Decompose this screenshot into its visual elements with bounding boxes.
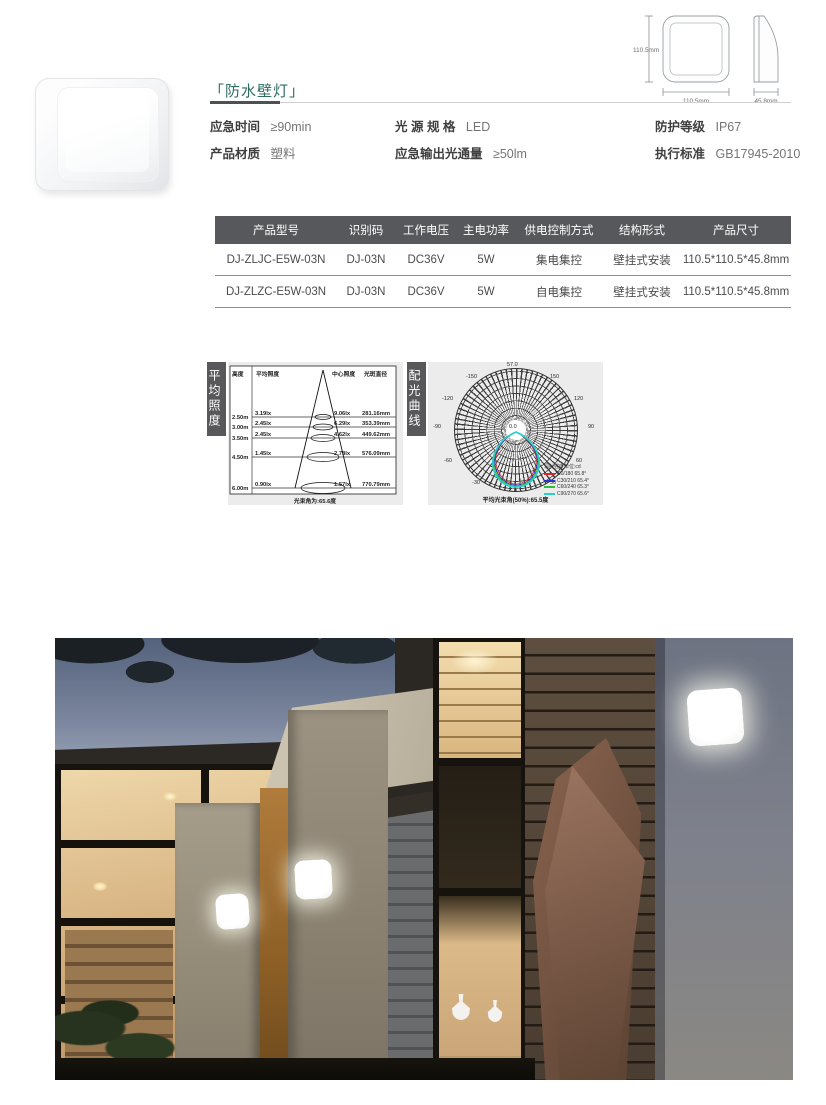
row-avg: 1.45lx	[255, 451, 272, 457]
legend-swatch	[544, 480, 555, 482]
photo-column-shadow	[655, 638, 665, 1080]
spec-item: 应急时间 ≥90min	[210, 114, 311, 141]
spec-value: ≥90min	[271, 120, 312, 134]
wall-lamp-right	[686, 687, 745, 747]
spec-item: 光 源 规 格 LED	[395, 114, 527, 141]
legend-title: 辐射强度单位:cd	[544, 463, 589, 470]
chart-panel-label: 配光曲线	[407, 362, 426, 436]
angle-label: -60	[444, 458, 452, 464]
table-cell: 自电集控	[515, 284, 603, 300]
curve-c60-240	[494, 432, 539, 486]
spec-list: 应急时间 ≥90min 产品材质 塑料 光 源 规 格 LED 应急输出光通量 …	[210, 114, 800, 170]
table-cell: DC36V	[395, 286, 457, 298]
col-header-spot: 光斑直径	[363, 370, 387, 378]
distribution-chart-panel: 配光曲线 57.0 0.0 -150 150 -120 120 -90 90 -…	[407, 362, 603, 505]
polar-legend: 辐射强度单位:cd C0/180 65.8° C30/210 65.4° C60…	[544, 463, 589, 497]
angle-label: 90	[588, 424, 594, 430]
spec-value: ≥50lm	[493, 147, 527, 161]
dim-height-label: 110.5mm	[633, 47, 659, 54]
spec-value: GB17945-2010	[716, 147, 801, 161]
photo-concrete-pillar-left	[175, 803, 260, 1080]
row-center: 9.06lx	[334, 411, 351, 417]
spec-value: LED	[466, 120, 490, 134]
dimension-drawing: 110.5mm 110.5mm 45.8mm	[633, 10, 803, 108]
table-header: 产品型号	[215, 222, 337, 238]
spec-label: 防护等级	[655, 120, 705, 134]
row-height: 4.50m	[232, 455, 248, 461]
illuminance-chart: 高度 平均照度 中心照度 光斑直径 2.50m 3.00m 3.50m 4.50…	[228, 362, 403, 505]
photo-vase-window	[439, 896, 521, 1056]
table-cell: DJ-ZLJC-E5W-03N	[215, 254, 337, 266]
photo-interior-wall	[439, 766, 521, 888]
legend-swatch	[544, 473, 555, 475]
col-header-center: 中心照度	[332, 370, 355, 378]
lamp-face	[57, 87, 159, 182]
col-header-avg: 平均照度	[256, 370, 279, 378]
table-cell: 110.5*110.5*45.8mm	[681, 254, 791, 266]
legend-swatch	[544, 486, 555, 488]
angle-label: 0	[514, 488, 517, 494]
row-spot: 576.09mm	[362, 451, 390, 457]
table-cell: 5W	[457, 254, 515, 266]
table-header: 结构形式	[603, 222, 681, 238]
side-view-outline	[754, 16, 778, 82]
legend-label: C60/240 65.3°	[557, 484, 589, 490]
table-row: DJ-ZLZC-E5W-03N DJ-03N DC36V 5W 自电集控 壁挂式…	[215, 276, 791, 308]
avg-beam-angle-note: 平均光束角(50%):65.5度	[428, 495, 603, 504]
polar-max-label: 57.0	[507, 362, 518, 368]
row-spot: 449.62mm	[362, 432, 390, 438]
angle-label: -150	[466, 374, 477, 380]
table-cell: 壁挂式安装	[603, 252, 681, 268]
row-height: 6.00m	[232, 486, 248, 492]
curve-c0-180	[496, 432, 537, 484]
row-avg: 0.90lx	[255, 482, 272, 488]
angle-label: -90	[433, 424, 441, 430]
distribution-chart: 57.0 0.0 -150 150 -120 120 -90 90 -60 60…	[428, 362, 603, 505]
table-cell: DJ-03N	[337, 286, 395, 298]
spec-item: 防护等级 IP67	[655, 114, 800, 141]
row-height: 3.00m	[232, 425, 248, 431]
page-title: 「防水壁灯」	[209, 80, 305, 101]
row-center: 4.62lx	[334, 432, 351, 438]
spec-label: 执行标准	[655, 147, 705, 161]
curve-c30-210	[495, 432, 538, 485]
table-cell: DC36V	[395, 254, 457, 266]
row-avg: 2.45lx	[255, 432, 272, 438]
table-cell: 5W	[457, 286, 515, 298]
table-cell: DJ-ZLZC-E5W-03N	[215, 286, 337, 298]
table-header-row: 产品型号 识别码 工作电压 主电功率 供电控制方式 结构形式 产品尺寸	[215, 216, 791, 244]
photo-wood-band	[260, 788, 290, 1080]
spec-item: 执行标准 GB17945-2010	[655, 141, 800, 168]
spec-label: 应急时间	[210, 120, 260, 134]
row-spot: 281.16mm	[362, 411, 390, 417]
spec-label: 光 源 规 格	[395, 120, 455, 134]
wall-lamp-left	[215, 893, 250, 930]
model-table: 产品型号 识别码 工作电压 主电功率 供电控制方式 结构形式 产品尺寸 DJ-Z…	[215, 216, 791, 308]
spec-item: 产品材质 塑料	[210, 141, 311, 168]
spec-label: 应急输出光通量	[395, 147, 483, 161]
application-photo	[55, 638, 793, 1080]
row-avg: 3.19lx	[255, 411, 272, 417]
row-height: 3.50m	[232, 436, 248, 442]
photo-ground-shadow	[55, 1058, 535, 1080]
table-cell: DJ-03N	[337, 254, 395, 266]
spec-item: 应急输出光通量 ≥50lm	[395, 141, 527, 168]
beam-angle-note: 光束角为:65.6度	[293, 497, 336, 505]
datasheet-page: 110.5mm 110.5mm 45.8mm 「防水壁灯」 应急时间 ≥90mi…	[0, 0, 826, 1105]
table-cell: 集电集控	[515, 252, 603, 268]
row-center: 1.57lx	[334, 482, 351, 488]
table-header: 工作电压	[395, 222, 457, 238]
front-view-lens	[670, 23, 722, 75]
photo-downlight	[163, 792, 177, 801]
angle-label: 120	[574, 396, 583, 402]
legend-label: C0/180 65.8°	[557, 471, 586, 477]
table-header: 主电功率	[457, 222, 515, 238]
photo-interior-light	[451, 648, 499, 674]
photo-downlight	[93, 882, 107, 891]
polar-center-label: 0.0	[509, 424, 517, 430]
photo-interior-window	[433, 638, 527, 1080]
chart-panel-label: 平均照度	[207, 362, 226, 436]
row-spot: 353.39mm	[362, 421, 390, 427]
col-header-height: 高度	[232, 370, 244, 378]
angle-label: -30	[472, 480, 480, 486]
table-header: 供电控制方式	[515, 222, 603, 238]
spec-value: IP67	[716, 120, 742, 134]
table-cell: 110.5*110.5*45.8mm	[681, 286, 791, 298]
table-row: DJ-ZLJC-E5W-03N DJ-03N DC36V 5W 集电集控 壁挂式…	[215, 244, 791, 276]
photo-vase	[487, 1000, 503, 1022]
legend-label: C30/210 65.4°	[557, 478, 589, 484]
product-photo	[35, 78, 169, 191]
illuminance-chart-panel: 平均照度 高度 平均照度 中心照度 光斑直径 2.50m 3.00m 3.50m…	[207, 362, 403, 505]
spec-value: 塑料	[271, 147, 296, 161]
title-divider	[210, 102, 791, 103]
table-header: 识别码	[337, 222, 395, 238]
spec-label: 产品材质	[210, 147, 260, 161]
row-avg: 2.45lx	[255, 421, 272, 427]
table-cell: 壁挂式安装	[603, 284, 681, 300]
angle-label: 150	[550, 374, 559, 380]
photo-vase	[451, 994, 471, 1020]
title-divider-accent	[210, 101, 280, 104]
wall-lamp-middle	[294, 859, 333, 900]
table-header: 产品尺寸	[681, 222, 791, 238]
lamp-lens	[65, 95, 149, 172]
angle-label: -120	[442, 396, 453, 402]
row-height: 2.50m	[232, 415, 248, 421]
row-spot: 770.79mm	[362, 482, 390, 488]
